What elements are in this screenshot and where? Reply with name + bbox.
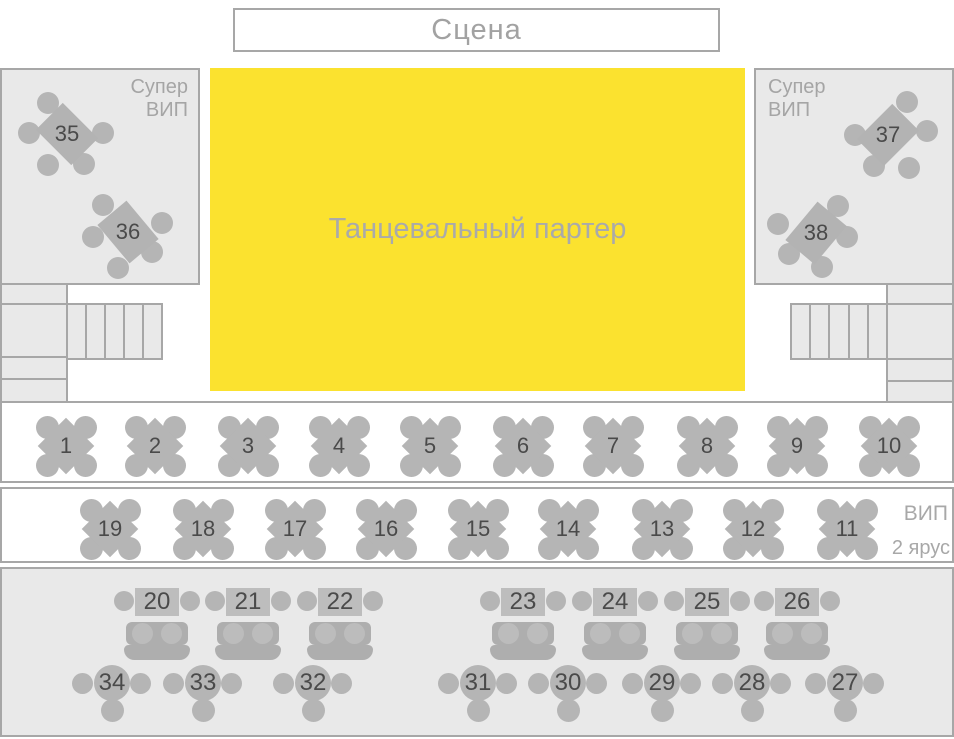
- chair: [651, 699, 674, 722]
- table-1[interactable]: 1: [28, 408, 104, 484]
- stair-step: [867, 305, 886, 358]
- chair: [546, 591, 566, 611]
- left-box-4: [0, 378, 68, 403]
- table-number: 17: [257, 491, 333, 567]
- sofa-back: [217, 622, 279, 645]
- table-number: 37: [843, 90, 933, 180]
- stair-step: [848, 305, 867, 358]
- chair: [496, 673, 517, 694]
- sofa-cushion: [682, 623, 703, 644]
- chair: [302, 699, 325, 722]
- table-34[interactable]: 34: [67, 660, 157, 724]
- table-number-plate: 24: [593, 588, 637, 616]
- stage: Сцена: [233, 8, 720, 52]
- sofa-back: [584, 622, 646, 645]
- table-number: 12: [715, 491, 791, 567]
- table-number: 11: [809, 491, 885, 567]
- table-31[interactable]: 31: [433, 660, 523, 724]
- table-35[interactable]: 35: [22, 89, 112, 179]
- chair: [271, 591, 291, 611]
- super-vip-left-label: Супер ВИП: [130, 76, 188, 122]
- left-stairs: [66, 303, 163, 360]
- table-number: 2: [117, 408, 193, 484]
- chair: [834, 699, 857, 722]
- table-number: 16: [348, 491, 424, 567]
- table-number: 10: [851, 408, 927, 484]
- chair: [805, 673, 826, 694]
- table-top: 32: [295, 665, 331, 701]
- table-number: 18: [165, 491, 241, 567]
- table-number: 7: [575, 408, 651, 484]
- chair: [72, 673, 93, 694]
- sofa-cushion: [711, 623, 732, 644]
- sofa-cushion: [527, 623, 548, 644]
- right-box-3: [886, 358, 954, 382]
- dance-floor-label: Танцевальный партер: [329, 213, 627, 246]
- table-number: 13: [624, 491, 700, 567]
- table-number-plate: 22: [318, 588, 362, 616]
- table-25[interactable]: 25: [662, 586, 752, 662]
- chair: [586, 673, 607, 694]
- chair: [331, 673, 352, 694]
- table-top: 33: [185, 665, 221, 701]
- table-24[interactable]: 24: [570, 586, 660, 662]
- sofa-base: [764, 645, 830, 660]
- table-number-plate: 25: [685, 588, 729, 616]
- right-box-1: [886, 283, 954, 305]
- stair-step: [104, 305, 123, 358]
- chair: [863, 673, 884, 694]
- table-13[interactable]: 13: [624, 491, 700, 567]
- table-11[interactable]: 11: [809, 491, 885, 567]
- sofa-back: [126, 622, 188, 645]
- sofa-cushion: [132, 623, 153, 644]
- table-number: 4: [301, 408, 377, 484]
- table-top: 30: [550, 665, 586, 701]
- chair: [712, 673, 733, 694]
- tier-2-label: 2 ярус: [892, 537, 950, 560]
- stair-step: [828, 305, 847, 358]
- stage-label: Сцена: [431, 14, 522, 47]
- table-number-plate: 21: [226, 588, 270, 616]
- sofa-back: [309, 622, 371, 645]
- chair: [221, 673, 242, 694]
- table-27[interactable]: 27: [800, 660, 890, 724]
- chair: [572, 591, 592, 611]
- table-number: 5: [392, 408, 468, 484]
- table-32[interactable]: 32: [268, 660, 358, 724]
- sofa-cushion: [619, 623, 640, 644]
- chair: [130, 673, 151, 694]
- table-top: 34: [94, 665, 130, 701]
- table-7[interactable]: 7: [575, 408, 651, 484]
- table-number: 1: [28, 408, 104, 484]
- table-2[interactable]: 2: [117, 408, 193, 484]
- chair: [680, 673, 701, 694]
- table-10[interactable]: 10: [851, 408, 927, 484]
- sofa-base: [490, 645, 556, 660]
- sofa-base: [307, 645, 373, 660]
- chair: [638, 591, 658, 611]
- table-number: 36: [83, 187, 173, 277]
- table-6[interactable]: 6: [485, 408, 561, 484]
- chair: [730, 591, 750, 611]
- table-36[interactable]: 36: [83, 187, 173, 277]
- table-29[interactable]: 29: [617, 660, 707, 724]
- table-number: 35: [22, 89, 112, 179]
- table-number: 6: [485, 408, 561, 484]
- stair-step: [85, 305, 104, 358]
- left-box-2: [0, 303, 68, 358]
- sofa-base: [124, 645, 190, 660]
- table-top: 28: [734, 665, 770, 701]
- table-number: 3: [210, 408, 286, 484]
- table-38[interactable]: 38: [771, 188, 861, 278]
- table-number: 15: [440, 491, 516, 567]
- table-33[interactable]: 33: [158, 660, 248, 724]
- table-9[interactable]: 9: [759, 408, 835, 484]
- table-15[interactable]: 15: [440, 491, 516, 567]
- table-top: 31: [460, 665, 496, 701]
- chair: [205, 591, 225, 611]
- sofa-cushion: [315, 623, 336, 644]
- chair: [754, 591, 774, 611]
- table-number: 19: [72, 491, 148, 567]
- table-26[interactable]: 26: [752, 586, 842, 662]
- table-number: 14: [530, 491, 606, 567]
- table-top: 29: [644, 665, 680, 701]
- table-21[interactable]: 21: [203, 586, 293, 662]
- right-box-2: [886, 303, 954, 360]
- stair-step: [68, 305, 85, 358]
- table-5[interactable]: 5: [392, 408, 468, 484]
- sofa-cushion: [590, 623, 611, 644]
- super-vip-right-label: Супер ВИП: [768, 76, 826, 122]
- left-box-1: [0, 283, 68, 305]
- chair: [192, 699, 215, 722]
- sofa-cushion: [801, 623, 822, 644]
- table-23[interactable]: 23: [478, 586, 568, 662]
- table-30[interactable]: 30: [523, 660, 613, 724]
- table-4[interactable]: 4: [301, 408, 377, 484]
- chair: [438, 673, 459, 694]
- chair: [741, 699, 764, 722]
- venue-seating-map: Сцена Танцевальный партер Супер ВИП Супе…: [0, 0, 954, 739]
- table-12[interactable]: 12: [715, 491, 791, 567]
- table-20[interactable]: 20: [112, 586, 202, 662]
- stair-step: [123, 305, 142, 358]
- table-18[interactable]: 18: [165, 491, 241, 567]
- chair: [557, 699, 580, 722]
- chair: [180, 591, 200, 611]
- sofa-cushion: [498, 623, 519, 644]
- sofa-back: [766, 622, 828, 645]
- table-14[interactable]: 14: [530, 491, 606, 567]
- left-box-3: [0, 356, 68, 380]
- sofa-cushion: [252, 623, 273, 644]
- chair: [770, 673, 791, 694]
- table-number-plate: 26: [775, 588, 819, 616]
- vip-label: ВИП: [904, 502, 948, 526]
- chair: [101, 699, 124, 722]
- chair: [622, 673, 643, 694]
- table-number-plate: 20: [135, 588, 179, 616]
- table-number: 38: [771, 188, 861, 278]
- chair: [820, 591, 840, 611]
- table-8[interactable]: 8: [669, 408, 745, 484]
- stair-step: [809, 305, 828, 358]
- sofa-back: [676, 622, 738, 645]
- table-number-plate: 23: [501, 588, 545, 616]
- sofa-back: [492, 622, 554, 645]
- table-top: 27: [827, 665, 863, 701]
- table-28[interactable]: 28: [707, 660, 797, 724]
- table-37[interactable]: 37: [843, 90, 933, 180]
- table-22[interactable]: 22: [295, 586, 385, 662]
- sofa-base: [582, 645, 648, 660]
- stair-step: [792, 305, 809, 358]
- table-17[interactable]: 17: [257, 491, 333, 567]
- chair: [163, 673, 184, 694]
- chair: [114, 591, 134, 611]
- chair: [528, 673, 549, 694]
- sofa-base: [674, 645, 740, 660]
- dance-floor-zone[interactable]: Танцевальный партер: [210, 68, 745, 391]
- chair: [664, 591, 684, 611]
- chair: [273, 673, 294, 694]
- chair: [363, 591, 383, 611]
- table-3[interactable]: 3: [210, 408, 286, 484]
- table-19[interactable]: 19: [72, 491, 148, 567]
- sofa-cushion: [772, 623, 793, 644]
- table-16[interactable]: 16: [348, 491, 424, 567]
- sofa-cushion: [161, 623, 182, 644]
- stair-step: [142, 305, 161, 358]
- chair: [297, 591, 317, 611]
- sofa-cushion: [344, 623, 365, 644]
- sofa-base: [215, 645, 281, 660]
- right-stairs: [790, 303, 888, 360]
- table-number: 8: [669, 408, 745, 484]
- right-box-4: [886, 380, 954, 403]
- sofa-cushion: [223, 623, 244, 644]
- table-number: 9: [759, 408, 835, 484]
- chair: [480, 591, 500, 611]
- chair: [467, 699, 490, 722]
